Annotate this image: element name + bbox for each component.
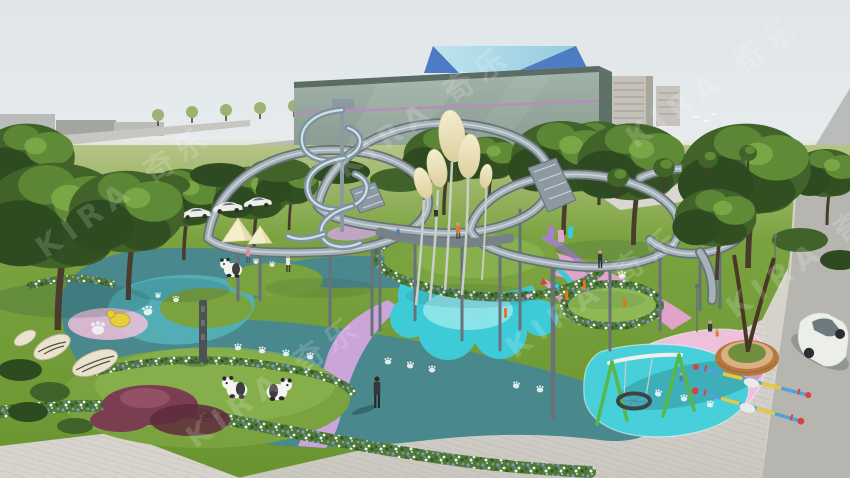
playground-rendering: KIRA 奇乐 KIRA 奇乐 KIRA 奇乐 KIRA 奇乐 KIRA 奇乐 … — [0, 0, 850, 478]
paw-print — [428, 365, 435, 372]
child-on-pad — [397, 227, 400, 235]
paw-island — [91, 321, 105, 334]
paw-print — [253, 258, 259, 264]
person-on-bridge — [434, 206, 438, 216]
paw-print — [680, 394, 687, 401]
paw-print — [234, 343, 241, 350]
paw-print — [536, 385, 543, 392]
paw-print — [155, 292, 161, 298]
scene-svg: KIRA 奇乐 KIRA 奇乐 KIRA 奇乐 KIRA 奇乐 KIRA 奇乐 … — [0, 0, 850, 478]
paw-print — [173, 296, 179, 302]
paw-print — [384, 357, 391, 364]
child-near-swing — [680, 373, 683, 382]
